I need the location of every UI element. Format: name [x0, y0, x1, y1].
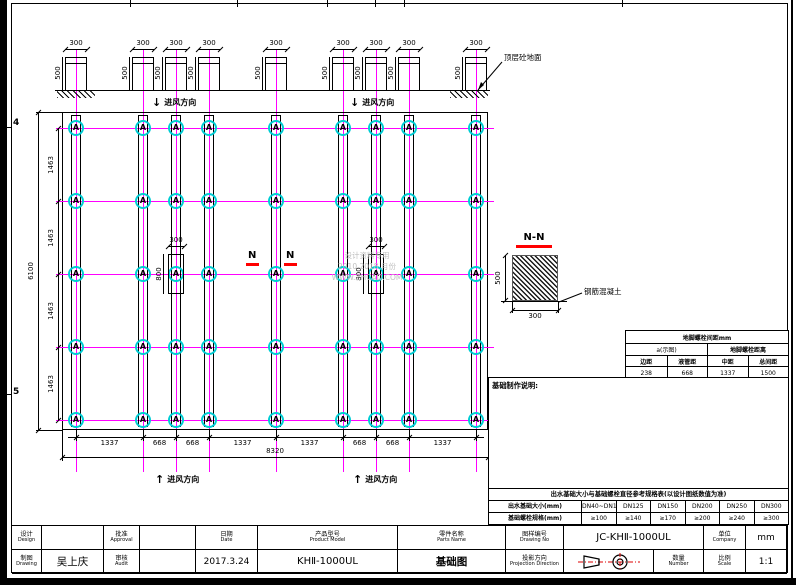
anchor-marker: A	[268, 193, 284, 209]
pedestal-width-dim-line	[198, 49, 220, 50]
pedestal-cap-line	[398, 63, 420, 64]
airflow-label: ↑进风方向	[353, 473, 397, 486]
footing-height-dim: 800	[155, 259, 163, 289]
anchor-marker: A	[168, 193, 184, 209]
pedestal-cap-line	[332, 63, 354, 64]
pedestal-width-dim: 300	[128, 39, 158, 47]
plan-bottom-dim: 1337	[95, 439, 125, 447]
anchor-marker: A	[68, 339, 84, 355]
number-label-en: Number	[668, 562, 688, 567]
spacing-col-header: 液管距	[667, 356, 708, 366]
pedestal-height-dim-line	[162, 57, 163, 90]
plan-left-dim: 1463	[47, 366, 55, 402]
pedestal-width-dim-line	[65, 49, 87, 50]
ext-line	[62, 430, 63, 461]
anchor-marker: A	[268, 412, 284, 428]
pedestal-height-dim: 500	[454, 58, 462, 88]
drawing-no-value: JC-KHⅡ-1000UL	[564, 526, 704, 550]
anchor-marker: A	[401, 339, 417, 355]
anchor-marker: A	[168, 339, 184, 355]
anchor-marker: A	[201, 339, 217, 355]
unit-value: mm	[746, 526, 787, 550]
frame-tick	[0, 127, 11, 128]
section-concrete-block	[512, 255, 558, 301]
plan-bottom-dim: 1337	[428, 439, 458, 447]
plan-left-dim: 1463	[47, 220, 55, 256]
dim-tick	[185, 47, 191, 53]
frame-tick	[404, 0, 405, 7]
pedestal-height-dim-line	[262, 57, 263, 90]
size-value: DN150	[650, 501, 685, 512]
pedestal-height-dim-line	[129, 57, 130, 90]
anchor-marker: A	[401, 120, 417, 136]
size-value: DN125	[616, 501, 651, 512]
spacing-col-header: 边距	[626, 356, 667, 366]
anchor-marker: A	[368, 412, 384, 428]
dim-tick	[285, 47, 291, 53]
airflow-text: 进风方向	[167, 474, 199, 485]
plan-left-total-dim: 6100	[27, 253, 35, 289]
footing-height-dim-line	[163, 254, 164, 294]
anchor-marker: A	[468, 193, 484, 209]
plan-left-dim: 1463	[47, 293, 55, 329]
anchor-marker: A	[168, 120, 184, 136]
spacing-table-header: 地脚螺栓间距mm	[626, 331, 788, 343]
pedestal-cap-line	[265, 63, 287, 64]
ground-hatch	[57, 91, 95, 98]
dim-tick	[352, 47, 358, 53]
watermark-line: WWW.ZHCAD.COM	[292, 272, 442, 283]
ext-line	[209, 430, 210, 441]
anchor-marker: A	[368, 120, 384, 136]
anchor-marker: A	[468, 412, 484, 428]
parts-name-label: 零件名称 Parts Name	[398, 526, 506, 550]
anchor-marker: A	[201, 412, 217, 428]
airflow-arrow-icon: ↓	[350, 96, 359, 109]
size-table: 出水基础大小与基础螺栓直径参考规格表(以设计图纸数值为准) 出水基础大小(mm)…	[489, 488, 788, 524]
frame-tick	[622, 0, 623, 7]
dim-tick	[385, 47, 391, 53]
pedestal-height-dim: 500	[321, 58, 329, 88]
approval-label-en: Approval	[110, 538, 132, 543]
parts-name-value: 基础图	[398, 550, 506, 574]
design-label: 设计 Design	[12, 526, 42, 550]
pedestal-height-dim-line	[362, 57, 363, 90]
notes-title: 基础制作说明:	[492, 380, 785, 391]
pedestal-height-dim-line	[395, 57, 396, 90]
audit-name-cell	[140, 550, 196, 574]
size-value: ≥240	[719, 513, 754, 524]
pedestal-width-dim-line	[365, 49, 387, 50]
number-label: 数量 Number	[654, 550, 704, 574]
anchor-marker: A	[368, 193, 384, 209]
section-height-dim: 500	[494, 263, 502, 293]
anchor-marker: A	[468, 339, 484, 355]
spacing-table: 地脚螺栓间距mm a(示图) 地脚螺栓距离 边距 液管距 中距 总间距 238 …	[625, 330, 789, 380]
ext-line	[36, 112, 62, 113]
anchor-marker: A	[201, 193, 217, 209]
section-width-dim: 300	[520, 312, 550, 320]
drawing-label-en: Drawing	[16, 562, 37, 567]
pedestal-height-dim: 500	[254, 58, 262, 88]
watermark: 设计资料专用 2010 2018 月份 WWW.ZHCAD.COM	[292, 250, 442, 283]
anchor-marker: A	[401, 193, 417, 209]
frame-tick	[327, 0, 328, 7]
footing-detail	[168, 254, 184, 294]
section-title-underline	[516, 245, 552, 248]
pedestal-width-dim: 300	[261, 39, 291, 47]
pedestal-cap-line	[365, 63, 387, 64]
size-row-label: 基础螺栓规格(mm)	[489, 513, 581, 524]
drawing-no-label-en: Drawing No	[520, 538, 549, 543]
plan-bottom-dim: 668	[178, 439, 208, 447]
airflow-arrow-icon: ↑	[353, 473, 362, 486]
product-model-value: KHⅡ-1000UL	[258, 550, 398, 574]
date-label-en: Date	[221, 538, 233, 543]
plan-bottom-dim: 668	[345, 439, 375, 447]
parts-name-label-en: Parts Name	[437, 538, 466, 543]
pedestal-height-dim: 500	[387, 58, 395, 88]
pedestal-height-dim-line	[195, 57, 196, 90]
design-name-cell	[42, 526, 104, 550]
dim-line	[38, 112, 39, 430]
pedestal-cap-line	[165, 63, 187, 64]
audit-label-en: Audit	[115, 562, 128, 567]
pedestal-width-dim-line	[465, 49, 487, 50]
projection-label: 投影方向 Projection Direction	[506, 550, 564, 574]
scale-label: 比例 Scale	[704, 550, 746, 574]
pedestal-cap-line	[198, 63, 220, 64]
pedestal-cap-line	[65, 63, 87, 64]
plan-bottom-dim: 668	[378, 439, 408, 447]
anchor-marker: A	[68, 193, 84, 209]
projection-symbol-cell	[564, 550, 654, 574]
anchor-marker: A	[468, 266, 484, 282]
anchor-marker: A	[268, 266, 284, 282]
size-value: DN250	[719, 501, 754, 512]
pedestal-width-dim: 300	[328, 39, 358, 47]
anchor-marker: A	[68, 120, 84, 136]
pedestal-cap-line	[132, 63, 154, 64]
audit-label: 审核 Audit	[104, 550, 140, 574]
size-row-label: 出水基础大小(mm)	[489, 501, 581, 512]
airflow-label: ↓进风方向	[152, 96, 196, 109]
dim-tick	[85, 47, 91, 53]
pedestal-width-dim-line	[132, 49, 154, 50]
spacing-table-subheader: a(示图)	[626, 344, 707, 355]
size-value: DN40~DN100	[581, 501, 616, 512]
plan-bottom-dim: 1337	[228, 439, 258, 447]
date-label: 日期 Date	[196, 526, 258, 550]
anchor-marker: A	[335, 193, 351, 209]
pedestal-height-dim-line	[329, 57, 330, 90]
section-height-dim-line	[505, 255, 506, 301]
watermark-line: 设计资料专用	[292, 250, 442, 261]
material-leader-line	[556, 288, 586, 304]
anchor-marker: A	[335, 339, 351, 355]
ground-surface-label: 顶层砼地面	[504, 54, 542, 62]
pedestal-width-dim: 300	[194, 39, 224, 47]
frame-tick	[130, 0, 131, 7]
size-value: ≥300	[754, 513, 789, 524]
scale-value: 1:1	[746, 550, 787, 574]
anchor-marker: A	[335, 412, 351, 428]
size-value: ≥100	[581, 513, 616, 524]
anchor-marker: A	[268, 339, 284, 355]
design-label-en: Design	[18, 538, 35, 543]
anchor-marker: A	[401, 412, 417, 428]
date-value: 2017.3.24	[196, 550, 258, 574]
dim-line	[62, 457, 488, 458]
anchor-marker: A	[335, 120, 351, 136]
size-value: ≥200	[685, 513, 720, 524]
pedestal-width-dim: 300	[361, 39, 391, 47]
section-width-dim-line	[512, 310, 558, 311]
watermark-line: 2010 2018 月份	[292, 261, 442, 272]
size-value: DN200	[685, 501, 720, 512]
ext-line	[276, 430, 277, 441]
drawing-label: 制图 Drawing	[12, 550, 42, 574]
anchor-marker: A	[201, 120, 217, 136]
ext-line	[476, 430, 477, 441]
plan-bottom-total-dim: 8320	[245, 447, 305, 455]
anchor-marker: A	[368, 339, 384, 355]
pedestal-width-dim-line	[332, 49, 354, 50]
size-value: ≥170	[650, 513, 685, 524]
pedestal-height-dim: 500	[121, 58, 129, 88]
section-cut-label: N	[248, 251, 256, 261]
pedestal-height-dim-line	[62, 57, 63, 90]
ground-leader-line	[468, 52, 508, 94]
company-label: 单位 Company	[704, 526, 746, 550]
pedestal-width-dim: 300	[461, 39, 491, 47]
airflow-text: 进风方向	[362, 97, 394, 108]
ext-line	[409, 430, 410, 441]
anchor-marker: A	[135, 193, 151, 209]
spacing-col-header: 总间距	[748, 356, 789, 366]
ext-line	[76, 430, 77, 441]
ext-line	[36, 430, 62, 431]
frame-tick	[237, 0, 238, 7]
size-value: ≥140	[616, 513, 651, 524]
footing-width-dim: 300	[361, 236, 391, 244]
plan-left-dim: 1463	[47, 147, 55, 183]
anchor-marker: A	[135, 266, 151, 282]
airflow-label: ↓进风方向	[350, 96, 394, 109]
product-model-label: 产品型号 Product Model	[258, 526, 398, 550]
drawer-name: 吴上庆	[42, 550, 104, 574]
spacing-col-header: 中距	[707, 356, 748, 366]
pedestal-height-dim-line	[462, 57, 463, 90]
size-table-header: 出水基础大小与基础螺栓直径参考规格表(以设计图纸数值为准)	[489, 489, 788, 501]
spacing-table-subheader: 地脚螺栓距离	[707, 344, 788, 355]
section-title: N-N	[511, 232, 557, 243]
pedestal-width-dim: 300	[161, 39, 191, 47]
plan-bottom-dim: 668	[145, 439, 175, 447]
size-value: DN300	[754, 501, 789, 512]
airflow-label: ↑进风方向	[155, 473, 199, 486]
airflow-arrow-icon: ↑	[155, 473, 164, 486]
dim-tick	[152, 47, 158, 53]
pedestal-height-dim: 500	[187, 58, 195, 88]
anchor-marker: A	[201, 266, 217, 282]
drawing-no-label: 图样编号 Drawing No	[506, 526, 564, 550]
frame-tick	[375, 0, 376, 7]
anchor-marker: A	[135, 120, 151, 136]
section-cut-underline	[246, 263, 259, 266]
approval-label: 批准 Approval	[104, 526, 140, 550]
anchor-marker: A	[135, 412, 151, 428]
company-label-en: Company	[713, 538, 737, 543]
section-material-label: 钢筋混凝土	[584, 288, 622, 296]
anchor-marker: A	[135, 339, 151, 355]
drawing-sheet: 4 5 300500300500300500300500300500300500…	[0, 0, 796, 585]
airflow-arrow-icon: ↓	[152, 96, 161, 109]
first-angle-projection-icon	[576, 552, 642, 572]
pedestal-width-dim-line	[165, 49, 187, 50]
pedestal-width-dim: 300	[394, 39, 424, 47]
pedestal-height-dim: 500	[154, 58, 162, 88]
dim-tick	[218, 47, 224, 53]
projection-label-en: Projection Direction	[510, 562, 559, 567]
approval-name-cell	[140, 526, 196, 550]
anchor-marker: A	[168, 412, 184, 428]
pedestal-width-dim: 300	[61, 39, 91, 47]
dim-tick	[418, 47, 424, 53]
title-block: 设计 Design 批准 Approval 日期 Date 产品型号 Produ…	[11, 525, 788, 573]
pedestal-height-dim: 500	[354, 58, 362, 88]
pedestal-width-dim-line	[265, 49, 287, 50]
anchor-marker: A	[468, 120, 484, 136]
frame-tick	[0, 394, 11, 395]
pedestal-height-dim: 500	[54, 58, 62, 88]
anchor-marker: A	[268, 120, 284, 136]
product-model-label-en: Product Model	[310, 538, 346, 543]
notes-panel: 基础制作说明: 出水基础大小与基础螺栓直径参考规格表(以设计图纸数值为准) 出水…	[488, 377, 789, 525]
section-ext-line	[512, 301, 513, 313]
pedestal-width-dim-line	[398, 49, 420, 50]
airflow-text: 进风方向	[365, 474, 397, 485]
scale-label-en: Scale	[718, 562, 731, 567]
footing-width-dim: 300	[161, 236, 191, 244]
airflow-text: 进风方向	[164, 97, 196, 108]
plan-bottom-dim: 1337	[295, 439, 325, 447]
anchor-marker: A	[68, 266, 84, 282]
anchor-marker: A	[68, 412, 84, 428]
